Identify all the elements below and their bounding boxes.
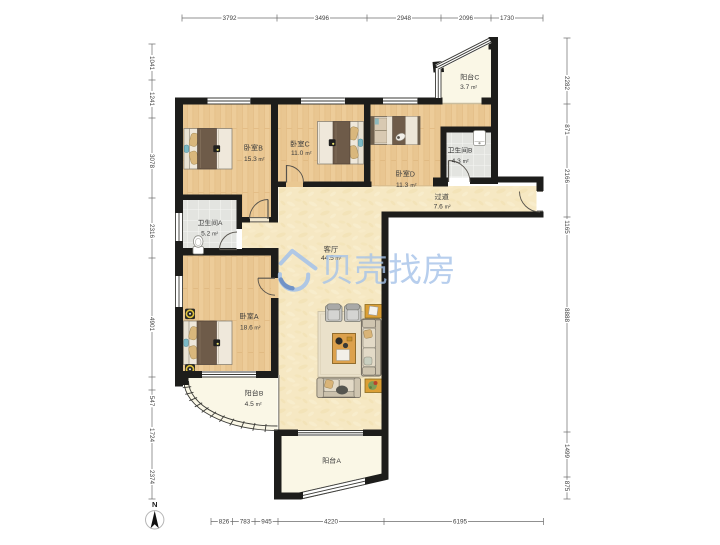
svg-text:3078: 3078 (148, 154, 155, 169)
svg-text:875: 875 (563, 481, 570, 492)
svg-text:C: C (474, 75, 479, 82)
svg-text:7.6: 7.6 (434, 204, 443, 211)
svg-text:547: 547 (148, 396, 155, 407)
svg-text:11.0: 11.0 (291, 150, 304, 157)
svg-text:4901: 4901 (148, 317, 155, 332)
svg-text:m²: m² (445, 205, 451, 211)
svg-text:2096: 2096 (459, 15, 474, 22)
svg-text:871: 871 (563, 124, 570, 135)
svg-text:2374: 2374 (148, 470, 155, 485)
svg-text:8888: 8888 (563, 308, 570, 323)
svg-text:4.5: 4.5 (245, 401, 254, 408)
svg-text:1724: 1724 (148, 428, 155, 443)
svg-text:5.2: 5.2 (201, 231, 210, 238)
svg-text:m²: m² (410, 183, 416, 189)
svg-text:1165: 1165 (563, 220, 570, 234)
svg-text:18.6: 18.6 (240, 325, 253, 332)
svg-text:A: A (218, 220, 223, 227)
svg-text:1241: 1241 (148, 92, 155, 107)
svg-text:4.3: 4.3 (452, 158, 461, 165)
svg-text:A: A (336, 458, 341, 465)
svg-text:m²: m² (254, 326, 260, 332)
svg-text:m²: m² (305, 151, 311, 157)
svg-text:3496: 3496 (315, 15, 330, 22)
svg-text:1730: 1730 (500, 15, 515, 22)
svg-text:2316: 2316 (148, 224, 155, 239)
svg-text:6195: 6195 (453, 519, 468, 526)
svg-text:m²: m² (256, 402, 262, 408)
svg-text:B: B (259, 391, 264, 398)
svg-text:826: 826 (219, 519, 230, 526)
svg-text:783: 783 (240, 519, 251, 526)
svg-text:11.3: 11.3 (396, 182, 409, 189)
svg-text:4220: 4220 (324, 519, 339, 526)
svg-text:1499: 1499 (563, 444, 570, 459)
svg-text:2948: 2948 (397, 15, 412, 22)
svg-text:m²: m² (258, 157, 264, 163)
svg-text:N: N (152, 500, 157, 509)
svg-text:m²: m² (471, 85, 477, 91)
svg-text:B: B (258, 145, 263, 152)
svg-text:A: A (254, 314, 259, 321)
svg-text:2166: 2166 (563, 169, 570, 184)
svg-text:3.7: 3.7 (460, 84, 469, 91)
svg-text:m²: m² (463, 159, 469, 165)
svg-text:1041: 1041 (148, 56, 155, 71)
svg-text:2282: 2282 (563, 76, 570, 91)
svg-text:3792: 3792 (222, 15, 237, 22)
svg-text:m²: m² (212, 232, 218, 238)
svg-text:C: C (305, 142, 310, 149)
svg-text:B: B (468, 148, 473, 155)
svg-text:945: 945 (261, 519, 272, 526)
svg-text:15.3: 15.3 (244, 156, 257, 163)
svg-text:D: D (410, 171, 415, 178)
